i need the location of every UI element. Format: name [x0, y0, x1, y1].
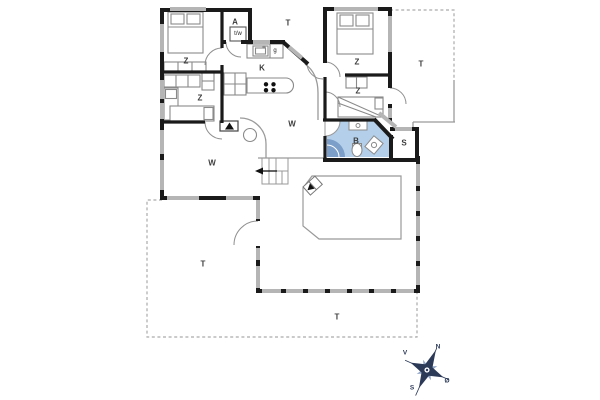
pool-steps-icon	[303, 176, 322, 195]
compass-south-label: S	[410, 385, 414, 392]
bunk-bed-e	[338, 77, 383, 117]
label-bedroom-nw: Z	[184, 57, 189, 66]
compass-west-label: V	[403, 350, 407, 357]
label-sauna: S	[401, 139, 406, 148]
label-terrace-east: T	[419, 60, 424, 69]
floor-plan-drawing	[0, 0, 600, 400]
label-washer-dryer: t/w	[234, 31, 242, 37]
label-kitchen: K	[259, 64, 265, 73]
bedroom-w-furniture	[164, 72, 246, 121]
terrace-edges	[413, 80, 455, 128]
label-bedroom-w: Z	[198, 94, 203, 103]
label-terrace-north: T	[286, 19, 291, 28]
label-entry: A	[232, 18, 238, 27]
label-living-center: W	[288, 120, 296, 129]
label-stove: g	[273, 48, 276, 54]
floor-plan: Z A t/w T Z T K g Z Z W B S W T T N V S …	[0, 0, 600, 400]
fireplace-icon	[220, 121, 257, 142]
kitchen-fixtures	[247, 44, 294, 93]
label-bathroom: B	[353, 137, 359, 146]
label-bedroom-ne: Z	[355, 58, 360, 67]
down-arrow-icon	[255, 168, 263, 175]
label-terrace-south: T	[335, 313, 340, 322]
compass-rose-icon	[394, 338, 459, 400]
pool	[303, 176, 401, 239]
compass-east-label: Ø	[444, 378, 449, 385]
bed-ne	[337, 13, 373, 54]
compass-north-label: N	[436, 344, 441, 351]
stairs	[255, 158, 288, 184]
label-bedroom-e: Z	[356, 87, 361, 96]
label-terrace-sw: T	[201, 260, 206, 269]
label-living-sw: W	[208, 159, 216, 168]
